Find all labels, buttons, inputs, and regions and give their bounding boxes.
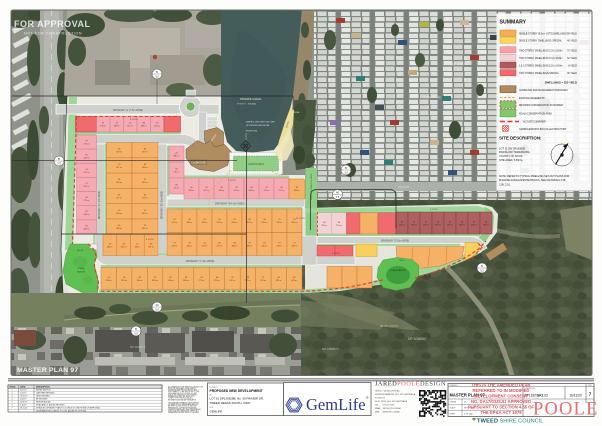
svg-text:EXISTING EASEMENTS: EXISTING EASEMENTS [519, 97, 545, 100]
svg-text:GEMLIFE: GEMLIFE [210, 409, 223, 413]
svg-text:323 m²: 323 m² [154, 125, 160, 128]
svg-text:200 m²: 200 m² [84, 227, 90, 230]
svg-text:COUNTY OF ROUS: COUNTY OF ROUS [499, 154, 523, 158]
svg-text:166 m²: 166 m² [137, 279, 143, 282]
svg-text:328 m²: 328 m² [116, 227, 122, 230]
svg-text:SINGLE STOREY (9.5m+ LOTS) DWE: SINGLE STOREY (9.5m+ LOTS) DWELLINGS [519, 34, 567, 36]
svg-text:178 m²: 178 m² [100, 125, 106, 128]
svg-text:383 m²: 383 m² [152, 279, 158, 282]
svg-text:KOALA CONSERVATION AREA: KOALA CONSERVATION AREA [519, 113, 552, 116]
svg-text:252 m²: 252 m² [121, 279, 127, 282]
svg-text:213 m²: 213 m² [260, 279, 266, 282]
svg-text:30 YIELD: 30 YIELD [567, 73, 577, 75]
svg-text:SITE AREA: 6.69 ha: SITE AREA: 6.69 ha [499, 158, 523, 162]
svg-text:NOT FOR CONSTRUCTION: NOT FOR CONSTRUCTION [24, 32, 82, 36]
svg-text:185 m²: 185 m² [141, 125, 147, 128]
svg-text:208 m²: 208 m² [292, 244, 298, 247]
svg-text:®: ® [366, 396, 369, 400]
svg-text:TWEED HEADS SOUTH, NSW.: TWEED HEADS SOUTH, NSW. [210, 401, 251, 405]
svg-text:326 m²: 326 m² [247, 244, 253, 247]
svg-text:GemLife: GemLife [306, 395, 366, 414]
svg-text:ACOUSTIC BARRIER: ACOUSTIC BARRIER [523, 121, 546, 124]
svg-text:329 m²: 329 m² [262, 221, 268, 224]
svg-text:EMAIL INFO@JPD.COM.AU: EMAIL INFO@JPD.COM.AU [375, 407, 402, 410]
svg-text:DRIVEWAY ‘D’ (6m WIDE): DRIVEWAY ‘D’ (6m WIDE) [381, 240, 409, 243]
svg-text:DEVELOPMENT CONSENT: DEVELOPMENT CONSENT [474, 394, 528, 399]
svg-text:DRIVEWAY ‘C’ (6m WIDE): DRIVEWAY ‘C’ (6m WIDE) [186, 260, 214, 263]
svg-text:258 m²: 258 m² [84, 157, 90, 160]
svg-text:330 m²: 330 m² [219, 189, 225, 192]
svg-text:NOTE: REFER TO TYPICAL DWELLIN: NOTE: REFER TO TYPICAL DWELLING SET-OUT … [499, 175, 569, 178]
svg-text:287 m²: 287 m² [148, 245, 154, 248]
svg-text:208 m²: 208 m² [249, 189, 255, 192]
svg-text:190 m²: 190 m² [459, 223, 465, 226]
svg-text:279 m²: 279 m² [84, 199, 90, 202]
svg-text:DP 1169579: DP 1169579 [130, 345, 146, 349]
svg-text:DRIVEWAY ‘B2’ (6m WIDE): DRIVEWAY ‘B2’ (6m WIDE) [161, 191, 164, 220]
svg-text:KOALA: KOALA [78, 267, 85, 270]
svg-text:52 YIELD: 52 YIELD [567, 58, 577, 60]
svg-text:THE EP&A ACT 1979: THE EP&A ACT 1979 [480, 410, 522, 415]
svg-text:170 m²: 170 m² [174, 170, 180, 173]
svg-text:204 m²: 204 m² [183, 279, 189, 282]
svg-text:217 m²: 217 m² [245, 279, 251, 282]
svg-text:LAWN BOWLS: LAWN BOWLS [248, 163, 265, 166]
svg-text:BP1152/SK2.02: BP1152/SK2.02 [525, 394, 549, 398]
svg-text:205 m²: 205 m² [84, 185, 90, 188]
svg-text:305 m²: 305 m² [292, 221, 298, 224]
svg-text:386 m²: 386 m² [232, 244, 238, 247]
svg-text:258 m²: 258 m² [471, 223, 477, 226]
svg-text:189 m²: 189 m² [142, 166, 148, 169]
svg-text:2.09, 2.16.: 2.09, 2.16. [499, 184, 511, 187]
svg-text:DWELLINGS = 250 YIELD: DWELLINGS = 250 YIELD [545, 81, 577, 85]
svg-text:5 LOTS: 5 LOTS [332, 253, 340, 255]
svg-text:50 YIELD: 50 YIELD [567, 34, 577, 36]
svg-text:OF EXISTING APPROVAL: OF EXISTING APPROVAL [246, 124, 271, 127]
svg-text:370 m²: 370 m² [435, 223, 441, 226]
svg-text:NO. DA17/0333.01 APPROVED: NO. DA17/0333.01 APPROVED [471, 399, 531, 404]
svg-text:SINGLE STOREY DWELLINGS SPECIA: SINGLE STOREY DWELLINGS SPECIAL [519, 40, 563, 43]
svg-text:339 m²: 339 m² [114, 125, 120, 128]
svg-text:DRIVEWAY ‘E1’ (6m WIDE): DRIVEWAY ‘E1’ (6m WIDE) [98, 191, 101, 220]
svg-text:225 m²: 225 m² [174, 186, 180, 189]
svg-text:247 m²: 247 m² [142, 212, 148, 215]
svg-text:304 m²: 304 m² [107, 245, 113, 248]
svg-text:374 m²: 374 m² [168, 279, 174, 282]
svg-text:B: B [345, 166, 347, 170]
svg-text:SP 17444: SP 17444 [398, 185, 410, 189]
svg-text:DASHED LINE DENOTES LINE: DASHED LINE DENOTES LINE [246, 121, 275, 124]
svg-text:RETAINED CONSERVATION 5m BUFFE: RETAINED CONSERVATION 5m BUFFER [519, 104, 563, 107]
svg-text:PRIVATE CANAL: PRIVATE CANAL [240, 97, 262, 101]
svg-text:247 m²: 247 m² [172, 221, 178, 224]
svg-text:SURFERS PARADISE, QLD, 4217 AU: SURFERS PARADISE, QLD, 4217 AUSTRALIA [375, 393, 416, 396]
svg-text:MASTER PLAN 97: MASTER PLAN 97 [17, 367, 78, 374]
svg-text:176 m²: 176 m² [142, 197, 148, 200]
svg-text:344 m²: 344 m² [116, 212, 122, 215]
svg-text:341 m²: 341 m² [291, 279, 297, 282]
svg-text:TEL 07 5571 2395: TEL 07 5571 2395 [375, 405, 394, 407]
svg-text:TWEED: TWEED [477, 419, 498, 425]
svg-text:277 m²: 277 m² [199, 279, 205, 282]
svg-text:336 m²: 336 m² [134, 245, 140, 248]
svg-text:252 m²: 252 m² [336, 224, 342, 227]
svg-text:PROPOSED NEW DEVELOPMENT: PROPOSED NEW DEVELOPMENT [210, 389, 263, 393]
svg-text:8 YIELD: 8 YIELD [568, 66, 577, 68]
svg-text:241 m²: 241 m² [142, 227, 148, 230]
svg-text:308 m²: 308 m² [189, 189, 195, 192]
svg-text:70 YIELD: 70 YIELD [567, 50, 577, 52]
svg-text:LOT 11 ON DP135628: LOT 11 ON DP135628 [499, 146, 526, 150]
svg-text:DP 342014: DP 342014 [452, 62, 468, 66]
svg-text:371 m²: 371 m² [279, 189, 285, 192]
svg-text:935 m²: 935 m² [399, 259, 405, 262]
svg-text:321 m²: 321 m² [247, 221, 253, 224]
svg-text:287 m²: 287 m² [276, 279, 282, 282]
svg-text:193 m²: 193 m² [172, 244, 178, 247]
svg-text:THIS IS THE AMENDED PLAN: THIS IS THE AMENDED PLAN [472, 383, 531, 388]
svg-text:364 m²: 364 m² [294, 189, 300, 192]
svg-text:SITE DESCRIPTION:: SITE DESCRIPTION: [499, 136, 542, 141]
svg-text:280 m²: 280 m² [411, 223, 417, 226]
svg-text:PURSUANT TO SECTION 4.55 OF: PURSUANT TO SECTION 4.55 OF [468, 405, 535, 410]
svg-text:LEVEL 1 / 23 EILDON ROAD: LEVEL 1 / 23 EILDON ROAD [375, 390, 400, 393]
svg-text:TWO STOREY DWELLINGS 10.2 x 16: TWO STOREY DWELLINGS 10.2 x 16.6m [519, 58, 563, 60]
svg-text:HABITAT: HABITAT [77, 270, 86, 273]
svg-text:40 YIELD: 40 YIELD [567, 41, 577, 43]
svg-text:233 m²: 233 m² [277, 244, 283, 247]
svg-text:156 m²: 156 m² [84, 213, 90, 216]
svg-text:172 m²: 172 m² [84, 143, 90, 146]
svg-text:315 m²: 315 m² [277, 221, 283, 224]
svg-text:16/11/20: 16/11/20 [569, 394, 582, 398]
svg-text:212 m²: 212 m² [127, 125, 133, 128]
svg-text:356 m²: 356 m² [106, 279, 112, 282]
svg-text:POOLE: POOLE [533, 400, 599, 420]
svg-text:GARBAGE/WASTE BIN COLLECTION P: GARBAGE/WASTE BIN COLLECTION POINT [519, 128, 567, 131]
svg-text:DP 1046557: DP 1046557 [408, 337, 427, 341]
svg-text:11 LOTS: 11 LOTS [296, 218, 305, 220]
svg-text:267 m²: 267 m² [229, 279, 235, 282]
svg-text:DP 1069579: DP 1069579 [322, 347, 339, 351]
svg-text:DRIVEWAY ‘B4’ (6m WIDE): DRIVEWAY ‘B4’ (6m WIDE) [215, 203, 245, 206]
svg-text:LOT 10 DP135628B, No. 30 FRASE: LOT 10 DP135628B, No. 30 FRASER DR, [210, 397, 265, 401]
svg-text:170 m²: 170 m² [264, 189, 270, 192]
svg-text:BUILDING ENVELOPES/SETBACKS, S: BUILDING ENVELOPES/SETBACKS, SEE DRAWING… [499, 179, 566, 182]
svg-text:JAREDPOOLEDESIGN: JAREDPOOLEDESIGN [375, 381, 446, 388]
svg-text:CLUBHOUSE: CLUBHOUSE [191, 162, 206, 165]
svg-text:386 m²: 386 m² [174, 154, 180, 157]
svg-text:206 m²: 206 m² [262, 244, 268, 247]
svg-text:157 m²: 157 m² [84, 171, 90, 174]
svg-text:221 m²: 221 m² [116, 197, 122, 200]
svg-text:No 91 QPRS, QLD, 4217 AUSTRALI: No 91 QPRS, QLD, 4217 AUSTRALIA [375, 400, 408, 403]
svg-text:DRAWN: DRAWN [450, 401, 457, 404]
svg-text:329 m²: 329 m² [116, 151, 122, 154]
svg-text:SCALE: SCALE [450, 406, 457, 409]
svg-text:237 m²: 237 m² [142, 151, 148, 154]
svg-text:PRE APPROVED 2.5m PATH: PRE APPROVED 2.5m PATH [310, 173, 313, 200]
svg-text:257 m²: 257 m² [116, 166, 122, 169]
svg-text:KOALA HABITAT: KOALA HABITAT [390, 269, 406, 272]
svg-text:336 m²: 336 m² [187, 244, 193, 247]
svg-text:B: B [156, 70, 158, 74]
svg-text:SHIRE COUNCIL: SHIRE COUNCIL [500, 419, 544, 425]
svg-text:DIMENSIONS ON SITE PRIOR TO WO: DIMENSIONS ON SITE PRIOR TO WORKS. [168, 412, 200, 414]
svg-text:FOR APPROVAL: FOR APPROVAL [14, 19, 91, 29]
svg-text:5 LOTS: 5 LOTS [430, 209, 438, 211]
svg-text:4B DP 136757: 4B DP 136757 [380, 324, 399, 328]
svg-text:B: B [135, 327, 137, 331]
svg-text:B: B [58, 157, 60, 161]
svg-text:363 m²: 363 m² [202, 221, 208, 224]
svg-text:247 m²: 247 m² [217, 244, 223, 247]
svg-text:SHEET: SHEET [450, 414, 457, 416]
svg-text:266 m²: 266 m² [187, 221, 193, 224]
svg-text:COMMUNAL AND MANAGEMENT BUILDI: COMMUNAL AND MANAGEMENT BUILDINGS [519, 89, 568, 92]
svg-text:TWO STOREY DWELLINGS 12.8 x 16: TWO STOREY DWELLINGS 12.8 x 16.6m [519, 50, 563, 52]
svg-text:166 m²: 166 m² [483, 223, 489, 226]
svg-text:1 & 2 STOREY DWELLINGS 12.5 x: 1 & 2 STOREY DWELLINGS 12.5 x 19.9m [519, 66, 563, 68]
svg-text:DRAWING: DRAWING [450, 384, 459, 387]
svg-text:1 OF 1 A3: 1 OF 1 A3 [464, 413, 473, 416]
svg-text:259 m²: 259 m² [321, 224, 327, 227]
svg-text:191 m²: 191 m² [202, 244, 208, 247]
svg-text:264 m²: 264 m² [116, 181, 122, 184]
svg-text:206 m²: 206 m² [399, 223, 405, 226]
svg-text:189 m²: 189 m² [447, 223, 453, 226]
svg-text:DRIVEWAYS RELOCATED TO 6.5M, A: DRIVEWAYS RELOCATED TO 6.5M, ADDED 'M' O… [36, 410, 87, 413]
svg-text:191 m²: 191 m² [217, 221, 223, 224]
svg-text:161 m²: 161 m² [234, 189, 240, 192]
svg-text:PONTOON: PONTOON [246, 131, 257, 133]
svg-text:173 m²: 173 m² [423, 223, 429, 226]
svg-text:650 m²: 650 m² [77, 249, 84, 252]
svg-text:356 m²: 356 m² [121, 245, 127, 248]
svg-text:SUMMARY: SUMMARY [500, 20, 527, 26]
svg-text:4 LOTS: 4 LOTS [146, 239, 154, 241]
svg-text:WEB WWW.JPD.COM.AU: WEB WWW.JPD.COM.AU [375, 411, 401, 414]
svg-text:REFERRED TO IN MODIFIED: REFERRED TO IN MODIFIED [473, 388, 530, 393]
svg-text:PRE APPROVED: PRE APPROVED [424, 96, 442, 99]
svg-text:ROAD: ROAD [294, 111, 300, 114]
svg-text:6 LOTS: 6 LOTS [130, 119, 138, 121]
svg-text:B: B [481, 264, 483, 268]
svg-text:376 m²: 376 m² [214, 279, 220, 282]
svg-text:297 m²: 297 m² [204, 189, 210, 192]
svg-text:345 m²: 345 m² [142, 181, 148, 184]
svg-text:PARISH OF TERRANORA: PARISH OF TERRANORA [499, 150, 530, 154]
svg-text:DRIVEWAY ‘E’ (7.5m WIDE): DRIVEWAY ‘E’ (7.5m WIDE) [113, 109, 143, 112]
svg-text:7 LOTS: 7 LOTS [228, 180, 236, 182]
svg-text:7: 7 [589, 392, 592, 397]
svg-text:99°58’10” - 396.8(M): 99°58’10” - 396.8(M) [237, 104, 256, 106]
svg-text:PO BOX 67: PO BOX 67 [375, 398, 385, 400]
svg-text:TWO STOREY DWELLINGS SPECIAL: TWO STOREY DWELLINGS SPECIAL [519, 72, 560, 75]
svg-text:240 m²: 240 m² [232, 221, 238, 224]
